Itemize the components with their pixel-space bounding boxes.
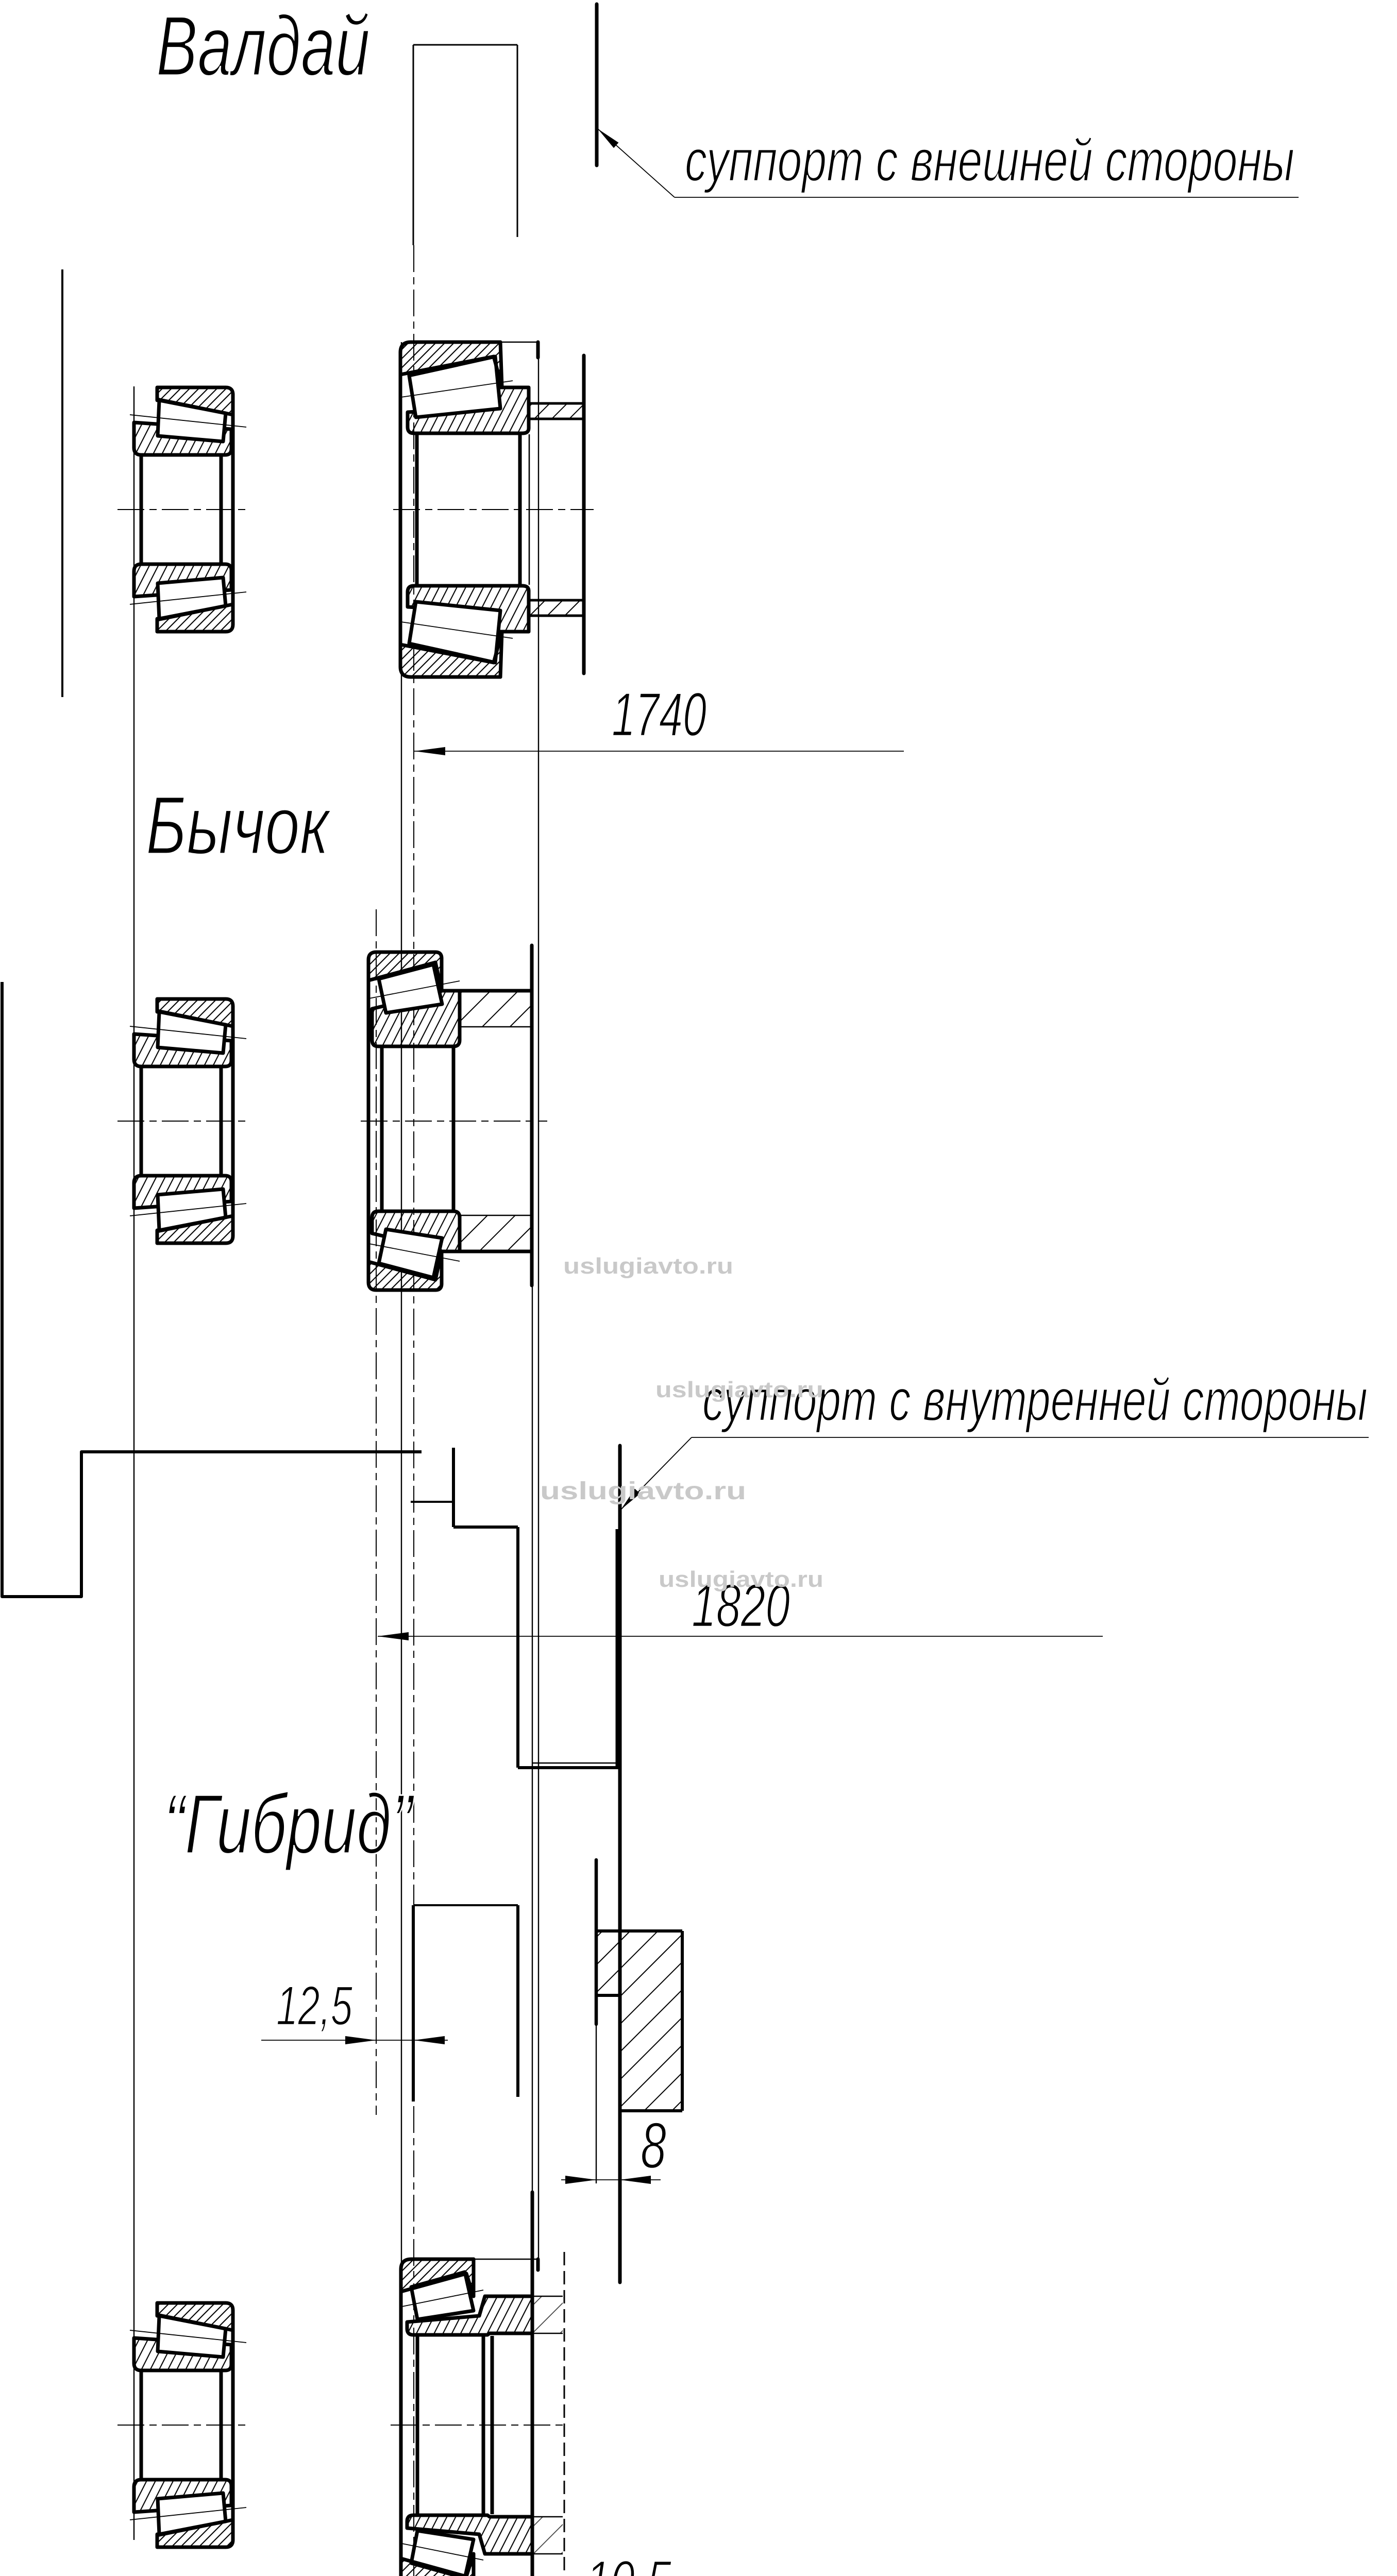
svg-text:12,5: 12,5: [276, 1974, 353, 2037]
svg-text:суппорт с внешней стороны: суппорт с внешней стороны: [685, 128, 1294, 194]
svg-text:8: 8: [641, 2109, 666, 2182]
svg-text:Бычок: Бычок: [146, 779, 331, 871]
svg-text:“Гибрид”: “Гибрид”: [164, 1777, 415, 1871]
svg-text:uslugiavto.ru: uslugiavto.ru: [655, 1377, 823, 1402]
svg-text:uslugiavto.ru: uslugiavto.ru: [659, 1567, 823, 1592]
svg-text:Валдай: Валдай: [156, 0, 370, 93]
svg-text:uslugiavto.ru: uslugiavto.ru: [563, 1253, 733, 1279]
svg-text:1740: 1740: [612, 680, 706, 749]
svg-text:10,5: 10,5: [586, 2549, 671, 2576]
svg-text:uslugiavto.ru: uslugiavto.ru: [540, 1478, 746, 1505]
